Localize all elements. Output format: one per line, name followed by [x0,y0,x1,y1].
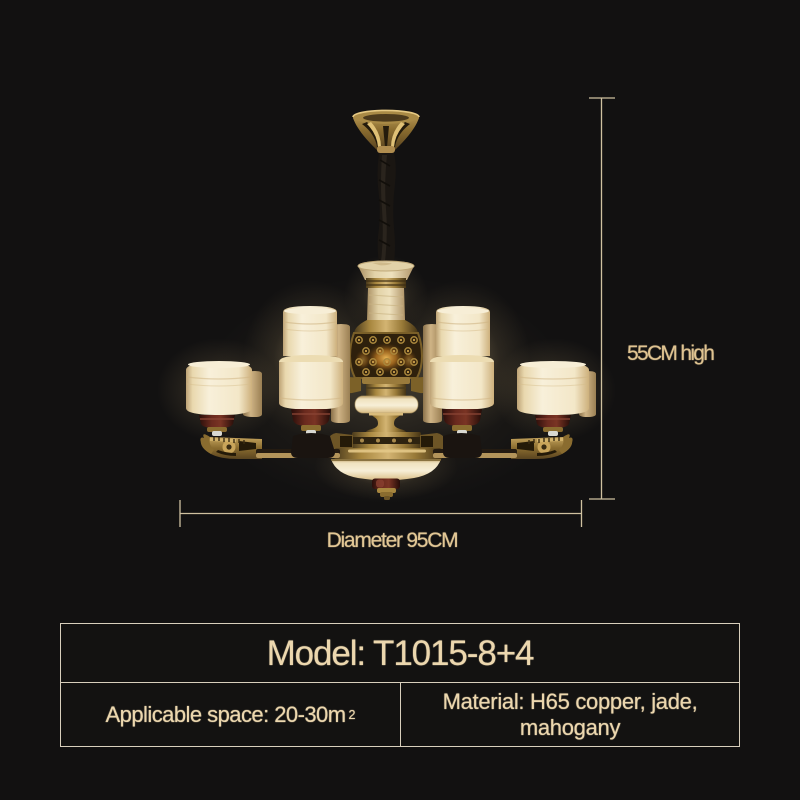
svg-text:55CM high: 55CM high [627,342,714,365]
svg-text:Diameter 95CM: Diameter 95CM [327,529,458,552]
